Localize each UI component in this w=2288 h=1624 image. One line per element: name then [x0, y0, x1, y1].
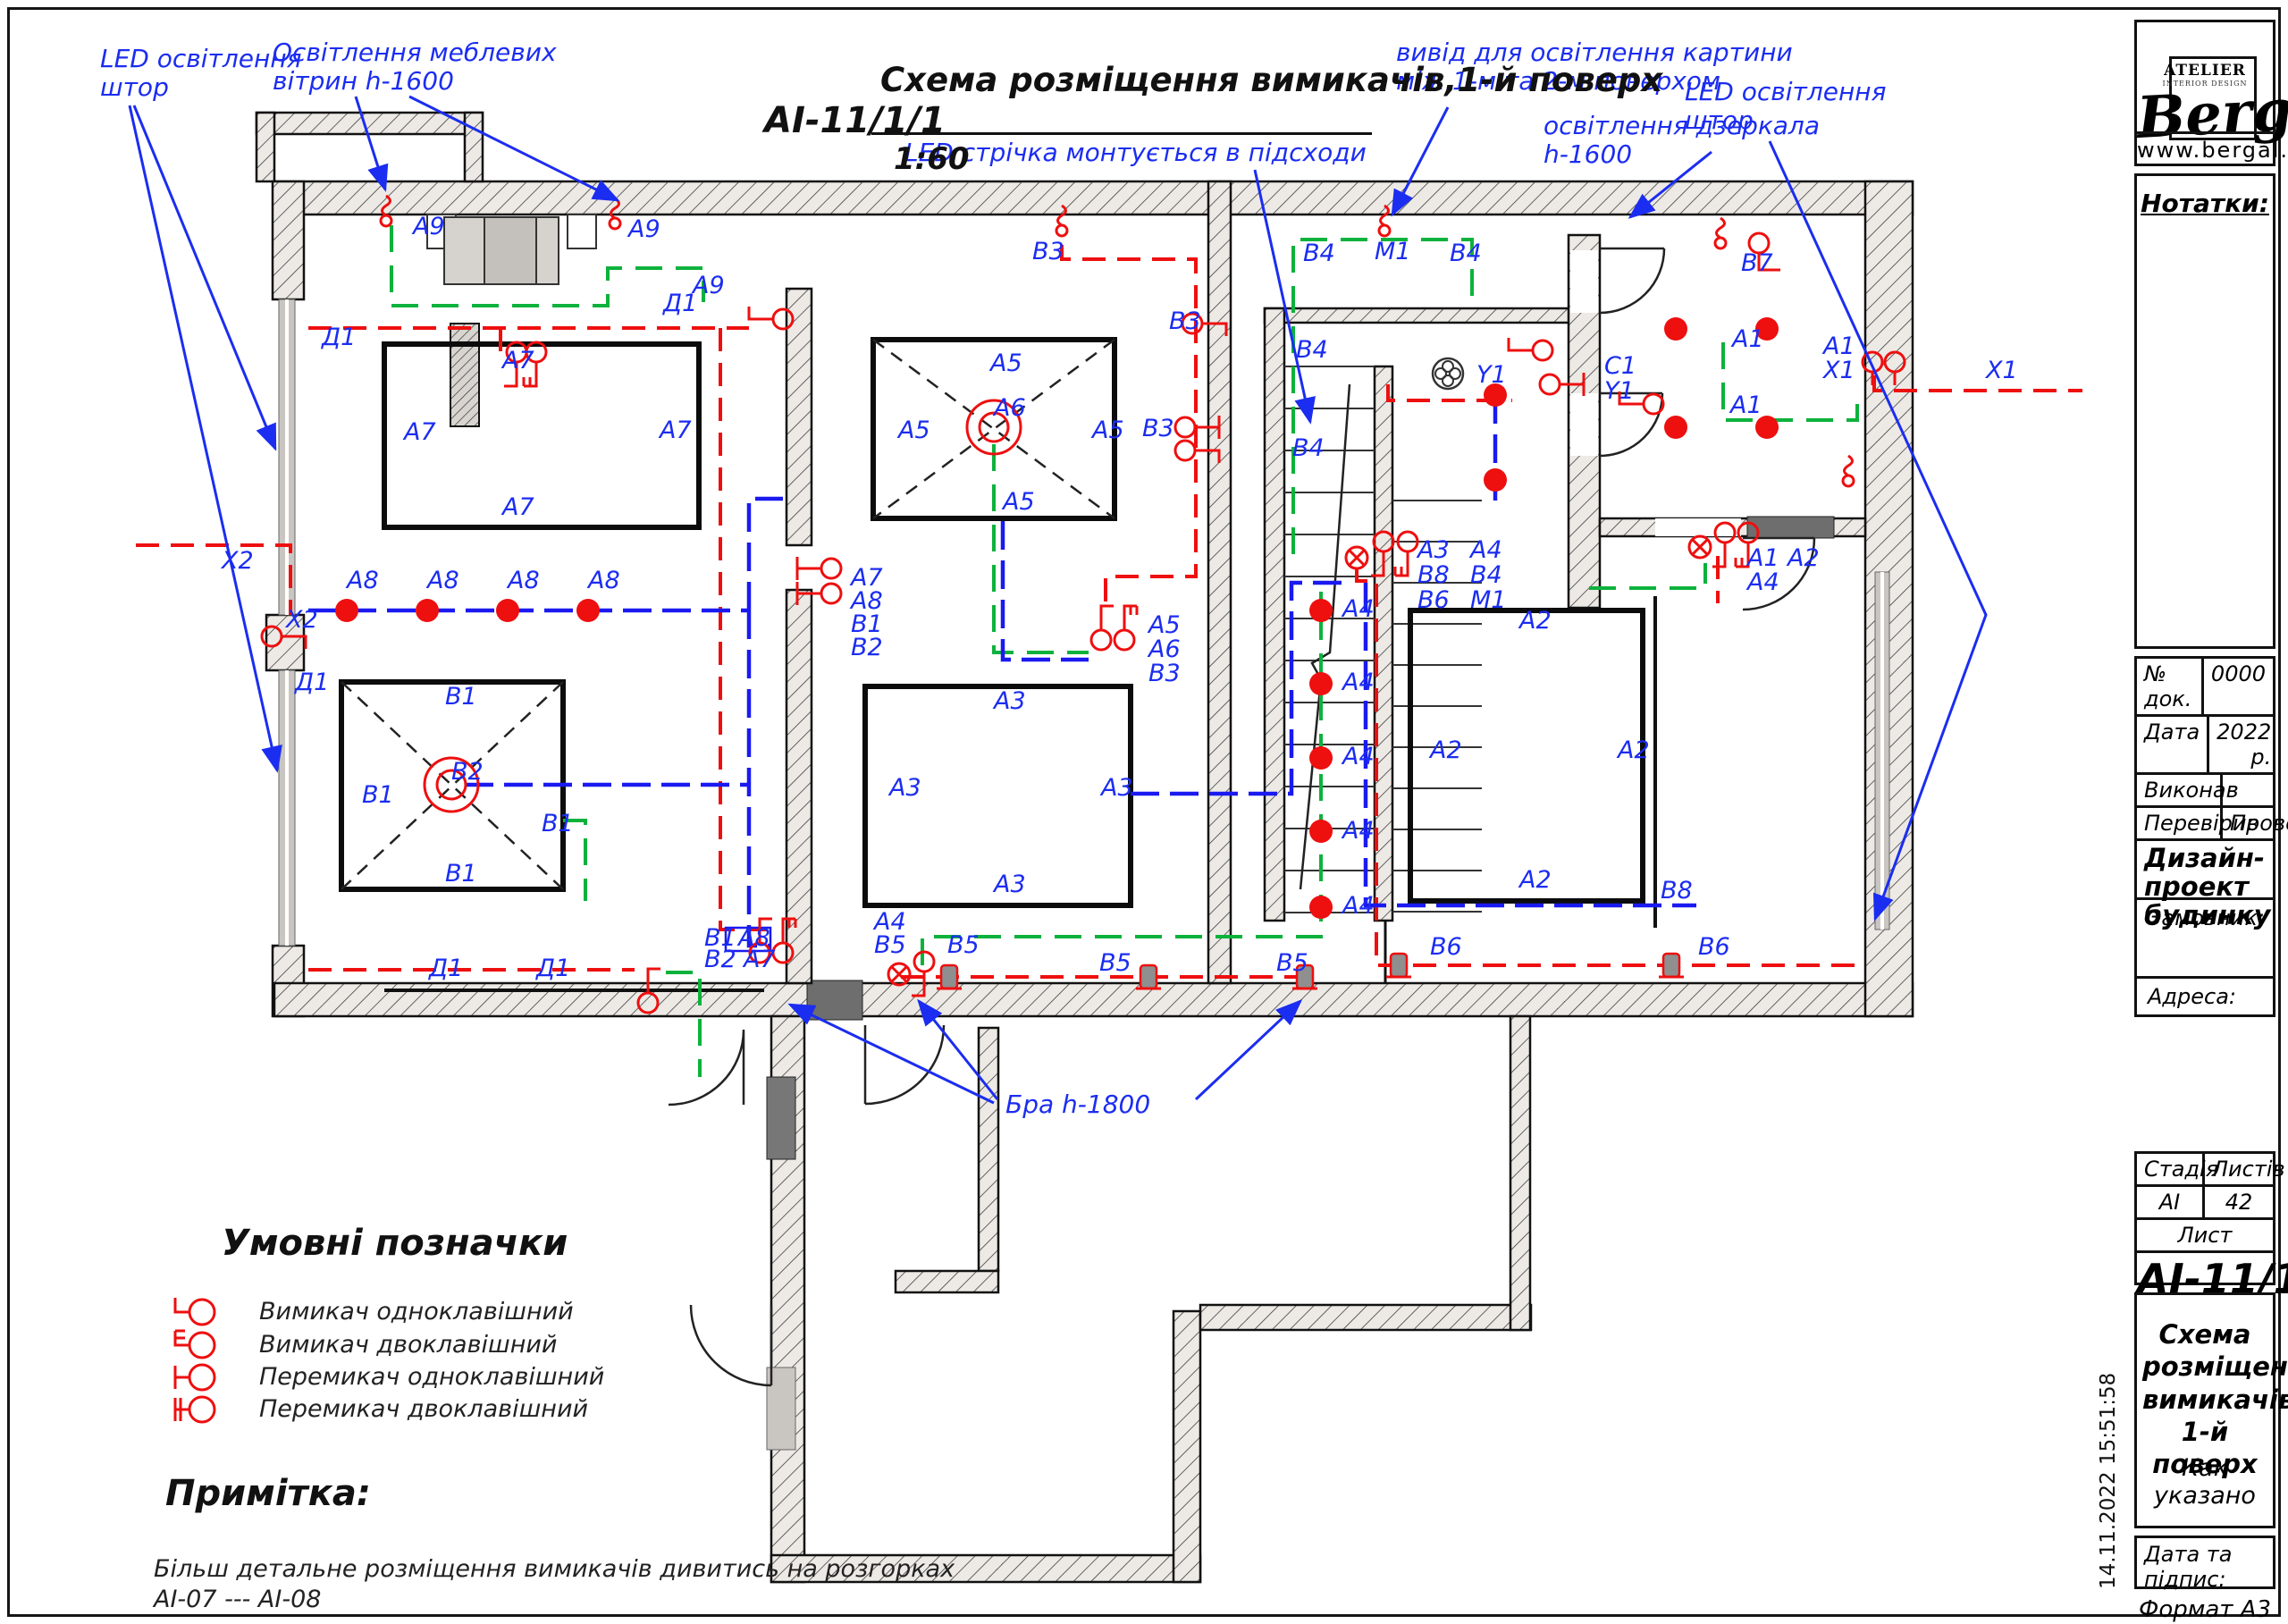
plan-label: А8 [345, 567, 379, 594]
drawing-number: АІ-11/1/1 [764, 100, 946, 141]
notes-heading: Нотатки: [2137, 189, 2273, 218]
plan-label: А2 [1518, 866, 1552, 894]
plan-label: А7 [658, 417, 692, 444]
project-name: Дизайн-проект будинку [2137, 841, 2278, 897]
plan-label: В5 [1099, 949, 1131, 977]
plan-label: А7 [500, 347, 534, 374]
plan-label: А2 [1616, 736, 1650, 764]
plan-label: А5 [1090, 417, 1124, 444]
legend-item-2: Вимикач двоклавішний [259, 1331, 557, 1359]
plan-label: А5 [988, 349, 1022, 377]
plan-label: А3 [887, 774, 921, 802]
drawing-title-box: Схема розміщення вимикачів, 1-й поверх К… [2134, 1292, 2275, 1528]
doc-no-label: № док. [2137, 659, 2204, 714]
sheets-label: Листів [2205, 1154, 2288, 1184]
plan-label: А1 [1729, 391, 1762, 419]
plan-label: А7 [742, 946, 776, 973]
logo-atelier: ATELIER [2137, 62, 2273, 80]
plan-label: А7 [402, 418, 436, 446]
annotation-vitrine-light: Освітлення меблевихвітрин h-1600 [273, 38, 557, 96]
plan-label: Д1 [662, 290, 697, 317]
plan-label: А3 [1099, 774, 1133, 802]
plan-label: А4 [1745, 568, 1779, 596]
plan-label: А8 [506, 567, 540, 594]
plan-label: Х2 [220, 547, 254, 575]
logo-website: www.bergal.com.ua [2137, 131, 2273, 164]
plan-label: В1 [445, 683, 477, 711]
plan-label: А6 [992, 394, 1026, 422]
plan-label: Д1 [535, 955, 570, 982]
plan-label: В5 [874, 931, 906, 959]
plan-label: В3 [1169, 307, 1201, 335]
plan-label: Х1 [1821, 357, 1855, 384]
note-line-1: Більш детальне розміщення вимикачів диви… [154, 1555, 955, 1583]
doc-no-value: 0000 [2204, 659, 2273, 714]
plan-label: C1 [1604, 352, 1636, 380]
plan-label: А3 [1416, 536, 1450, 564]
plan-label: Y1 [1476, 361, 1507, 389]
plan-label: Д1 [294, 669, 329, 696]
plan-label: А3 [992, 687, 1026, 715]
plan-label: А4 [1341, 743, 1375, 770]
plan-label: В2 [451, 758, 484, 786]
annotation-led-curtain-left: LED освітленняштор [100, 44, 301, 102]
note-heading: Примітка: [165, 1473, 371, 1514]
plan-label: Y1 [1604, 377, 1635, 405]
plan-label: В8 [1661, 877, 1693, 905]
plan-label: В1 [362, 781, 394, 809]
author-label: Виконав [2137, 775, 2223, 805]
checker-value: Проверил [2223, 808, 2288, 838]
date-label: Дата [2137, 717, 2209, 772]
legend-heading: Умовні позначки [222, 1223, 568, 1264]
plan-label: А2 [1428, 736, 1462, 764]
plan-label: А8 [425, 567, 459, 594]
notes-box: Нотатки: [2134, 173, 2275, 649]
title-rule [871, 132, 1372, 135]
plan-label: А4 [1341, 817, 1375, 845]
annotation-led-strip-stairs: LED стрічка монтується в підсходи [904, 138, 1367, 167]
plan-label: А8 [586, 567, 620, 594]
plan-label: А4 [1341, 669, 1375, 696]
plan-label: А2 [1518, 607, 1552, 635]
plan-label: А3 [992, 871, 1026, 898]
plan-label: В4 [1292, 434, 1325, 462]
format-label: Формат А3 [2134, 1596, 2275, 1623]
legend-symbols [175, 1298, 214, 1422]
plan-label: А4 [1341, 595, 1375, 623]
plan-label: А4 [1341, 892, 1375, 920]
author-value [2223, 775, 2273, 805]
plan-label: Д1 [428, 955, 463, 982]
address-label: Адреса: [2137, 979, 2273, 1014]
signature-box: Дата та підпис: [2134, 1536, 2275, 1589]
plan-label: В3 [1032, 238, 1064, 265]
plan-label: В4 [1296, 336, 1328, 364]
stage-label: Стадія [2137, 1154, 2205, 1184]
plan-label: В8 [1417, 561, 1450, 589]
plan-label: В4 [1303, 240, 1335, 267]
plan-label: В6 [1430, 933, 1462, 961]
plan-label: В5 [947, 931, 980, 959]
plan-label: М1 [1470, 586, 1506, 614]
plan-label: В6 [1698, 933, 1730, 961]
plan-label: В2 [704, 946, 736, 973]
plan-label: В4 [1450, 240, 1482, 267]
drawing-sheet: А9А9А9Д1Д1Д1Д1Д1А7А7А7А7А8А8А8А8Х2Х2В1В1… [0, 0, 2288, 1624]
plan-label: В3 [1142, 415, 1174, 442]
stage-value: АІ [2137, 1187, 2205, 1217]
sheet-label: Лист [2137, 1220, 2273, 1250]
timestamp: 14.11.2022 15:51:58 [2097, 1373, 2120, 1589]
note-line-2: АІ-07 --- АІ-08 [154, 1586, 321, 1613]
titleblock-drawing-title: Схема розміщення вимикачів, 1-й поверх [2137, 1295, 2273, 1480]
plan-label: В3 [1148, 660, 1181, 687]
legend-item-3: Перемикач одноклавішний [259, 1363, 604, 1391]
plan-label: В6 [1417, 586, 1450, 614]
plan-label: А9 [411, 213, 445, 240]
stage-table: Стадія Листів АІ 42 Лист АІ-11/1/1 [2134, 1151, 2275, 1285]
plan-label: А4 [1468, 536, 1502, 564]
walls [257, 113, 1913, 1582]
checker-label: Перевірив [2137, 808, 2223, 838]
as-noted: Как указано [2137, 1454, 2273, 1510]
plan-label: М1 [1375, 238, 1410, 265]
info-table: № док.0000 Дата2022 р. Виконав Перевірив… [2134, 656, 2275, 1017]
plan-label: В1 [445, 860, 477, 888]
drawing-title: Схема розміщення вимикачів,1-й поверх [880, 61, 1662, 99]
plan-label: А7 [500, 493, 534, 521]
fan-icon [1433, 358, 1463, 389]
plan-label: В5 [1276, 949, 1308, 977]
plan-label: В4 [1470, 561, 1502, 589]
plan-label: А5 [896, 417, 930, 444]
sheets-value: 42 [2205, 1187, 2273, 1217]
logo-box: ATELIER INTERIOR DESIGN Bergal www.berga… [2134, 20, 2275, 166]
plan-label: Д1 [321, 324, 356, 351]
legend-item-1: Вимикач одноклавішний [259, 1298, 574, 1325]
plan-label: А9 [627, 215, 660, 243]
plan-label: В7 [1741, 249, 1773, 277]
client-label: Замовник: [2137, 900, 2275, 976]
plan-label: Х1 [1984, 357, 2018, 384]
legend-item-4: Перемикач двоклавішний [259, 1395, 588, 1423]
plan-label: В1 [542, 810, 574, 837]
annotation-bra: Бра h-1800 [1005, 1090, 1150, 1119]
plan-label: А1 [1730, 325, 1764, 353]
date-value: 2022 р. [2209, 717, 2278, 772]
plan-label: А5 [1001, 488, 1035, 516]
drawing-scale: 1:60 [894, 141, 970, 177]
plan-label: Х2 [284, 606, 318, 634]
plan-label: А2 [1786, 544, 1820, 572]
plan-label: В2 [851, 634, 883, 661]
signature-label: Дата та підпис: [2137, 1538, 2273, 1595]
